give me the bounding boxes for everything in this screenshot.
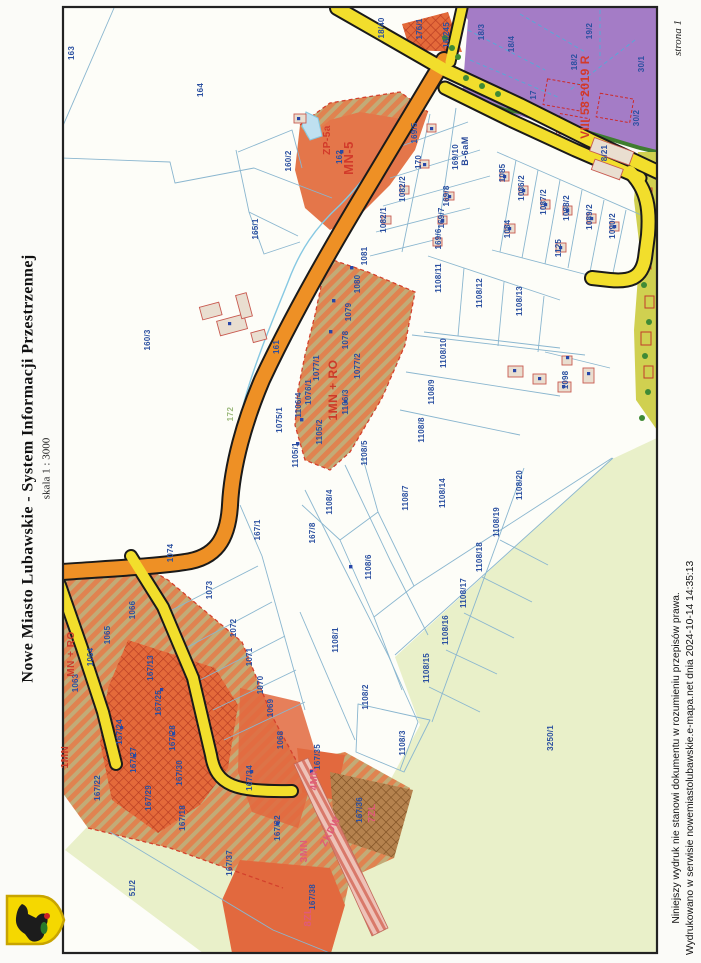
parcel-label: 51/2 xyxy=(128,879,137,896)
parcel-label: 1080 xyxy=(353,274,362,293)
parcel-label: 167/22 xyxy=(93,775,102,801)
parcel-label: 1077/2 xyxy=(353,353,362,379)
parcel-label: 1073 xyxy=(205,580,214,599)
parcel-label: 160/2 xyxy=(284,150,293,171)
parcel-label: 8/21 xyxy=(600,144,609,161)
parcel-label: 1078 xyxy=(341,330,350,349)
parcel-label: 167/25 xyxy=(154,690,163,716)
parcel-label: 1077/1 xyxy=(312,355,321,381)
parcel-label: 30/2 xyxy=(632,109,641,126)
parcel-label: 167/38 xyxy=(308,884,317,910)
parcel-label: 167/34 xyxy=(245,765,254,791)
parcel-label: 167/30 xyxy=(175,760,184,786)
parcel-label: 169/5 xyxy=(410,122,419,143)
parcel-label: 1105/2 xyxy=(315,419,324,445)
parcel-label: 167/37 xyxy=(225,850,234,876)
parcel-label: 163 xyxy=(67,46,76,60)
parcel-label: 1125 xyxy=(554,239,563,258)
zone-label: 4MN xyxy=(309,768,320,791)
parcel-label: 167/18 xyxy=(178,805,187,831)
parcel-label: 1082/1 xyxy=(379,207,388,233)
zone-label: 8ZL xyxy=(303,907,314,926)
zone-label: VIII 58 2019 R xyxy=(578,55,592,139)
parcel-label: 164 xyxy=(196,83,205,97)
parcel-label: 167/8 xyxy=(308,522,317,543)
parcel-label: 1108/19 xyxy=(492,507,501,537)
parcel-label: 1108/2 xyxy=(361,684,370,710)
zone-label: 172 xyxy=(226,407,235,422)
parcel-label: 167/36 xyxy=(355,797,364,823)
parcel-label: 17 xyxy=(529,90,538,100)
parcel-label: 1108/20 xyxy=(515,470,524,500)
parcel-label: 1108/8 xyxy=(417,417,426,443)
parcel-label: 16/245 xyxy=(442,22,451,48)
parcel-label: 1108/9 xyxy=(427,379,436,405)
parcel-label: 1108/7 xyxy=(401,485,410,511)
parcel-label: 176/1 xyxy=(415,18,424,39)
parcel-label: 1106/3 xyxy=(341,389,350,415)
parcel-label: 165/1 xyxy=(251,218,260,239)
zone-label: B-6aM xyxy=(460,136,470,166)
parcel-label: 170 xyxy=(414,155,423,169)
parcel-label: 1079 xyxy=(344,302,353,321)
parcel-label: 1108/6 xyxy=(364,554,373,580)
parcel-label: 1108/16 xyxy=(441,615,450,645)
parcel-label: 18/4 xyxy=(507,35,516,52)
coat-of-arms xyxy=(7,896,64,944)
zone-label: 3MN xyxy=(299,840,310,863)
parcel-label: 18/3 xyxy=(477,23,486,40)
parcel-label: 1068 xyxy=(276,730,285,749)
map-canvas: 163164160/2165/1162160/31611075/1169/517… xyxy=(0,0,701,960)
parcel-label: 167/29 xyxy=(144,785,153,811)
parcel-label: 169/6 xyxy=(434,228,443,249)
parcel-label: 167/24 xyxy=(115,719,124,745)
parcel-label: 1108/13 xyxy=(515,286,524,316)
parcel-label: 1065 xyxy=(103,625,112,644)
parcel-label: 1106/4 xyxy=(294,392,303,418)
zone-label: 1MN + RO xyxy=(326,359,340,420)
parcel-label: 1087/2 xyxy=(539,189,548,215)
printed-map-page: { "page": { "title": "Nowe Miasto Lubaws… xyxy=(0,0,701,960)
parcel-label: 30/1 xyxy=(637,55,646,72)
zone-label: 7ZL xyxy=(367,803,378,822)
parcel-label: 1064 xyxy=(86,647,95,666)
parcel-label: 1108/4 xyxy=(325,489,334,515)
parcel-label: 1108/11 xyxy=(434,263,443,293)
parcel-label: 1108/12 xyxy=(475,278,484,308)
parcel-label: 167/28 xyxy=(168,725,177,751)
parcel-label: 1082/2 xyxy=(398,176,407,202)
parcel-label: 18/40 xyxy=(377,17,386,38)
parcel-label: 1098 xyxy=(561,370,570,389)
parcel-label: 1084 xyxy=(503,219,512,238)
parcel-label: 1089/2 xyxy=(585,204,594,230)
parcel-label: 1090/2 xyxy=(608,213,617,239)
parcel-label: 169/8 xyxy=(442,185,451,206)
zone-label: MN-5 xyxy=(341,141,356,175)
parcel-label: 19/2 xyxy=(585,22,594,39)
parcel-label: 160/3 xyxy=(143,329,152,350)
parcel-label: 167/13 xyxy=(146,655,155,681)
parcel-label: 1085 xyxy=(498,163,507,182)
parcel-label: 3250/1 xyxy=(546,725,555,751)
parcel-label: 1069 xyxy=(266,698,275,717)
parcel-label: 1075/1 xyxy=(275,407,284,433)
parcel-label: 1088/2 xyxy=(562,195,571,221)
zone-label: 1MN xyxy=(60,746,71,769)
parcel-label: 169/7 xyxy=(437,207,446,228)
parcel-label: 1086/2 xyxy=(517,175,526,201)
parcel-label: 1076/1 xyxy=(304,379,313,405)
parcel-label: 1108/1 xyxy=(331,627,340,653)
parcel-label: 1081 xyxy=(360,246,369,265)
zone-label: MN + RO xyxy=(66,631,77,676)
parcel-label: 1066 xyxy=(128,600,137,619)
parcel-label: 1072 xyxy=(229,618,238,637)
parcel-label: 161 xyxy=(272,340,281,354)
zone-label: ZP-5a xyxy=(322,125,333,155)
parcel-label: 1074 xyxy=(166,543,175,562)
parcel-label: 169/10 xyxy=(451,144,460,170)
parcel-label: 1108/18 xyxy=(475,542,484,572)
parcel-label: 1108/17 xyxy=(459,578,468,608)
parcel-label: 1108/14 xyxy=(438,478,447,508)
parcel-label: 1105/1 xyxy=(291,442,300,468)
parcel-label: 1108/15 xyxy=(422,653,431,683)
parcel-label: 167/32 xyxy=(273,815,282,841)
parcel-label: 167/1 xyxy=(253,519,262,540)
parcel-label: 1108/10 xyxy=(439,338,448,368)
parcel-label: 1108/3 xyxy=(398,730,407,756)
parcel-label: 167/35 xyxy=(313,744,322,770)
parcel-label: 1071 xyxy=(245,647,254,666)
parcel-label: 1108/5 xyxy=(360,440,369,466)
parcel-label: 1070 xyxy=(256,675,265,694)
parcel-label: 167/27 xyxy=(129,747,138,773)
